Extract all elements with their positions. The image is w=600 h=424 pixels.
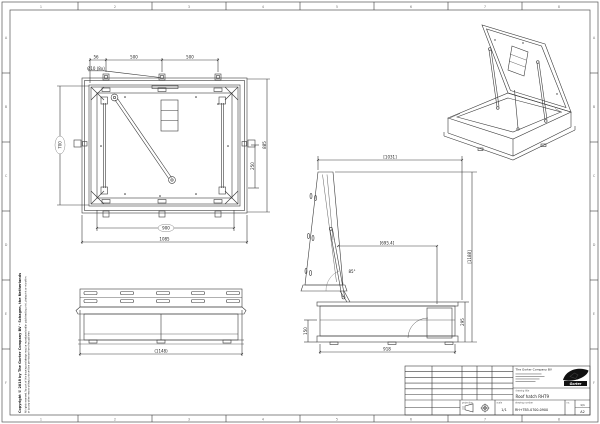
logo-text: Gorter	[570, 382, 582, 386]
grid-row-label: A	[5, 36, 8, 40]
dim-curb-upstand: 150	[303, 327, 308, 335]
grid-row-label: D	[593, 243, 596, 247]
drawing-canvas: 1 2 3 4 5 6 7 8 1 2 3 4 5 6 7 8 A B C D …	[0, 0, 600, 424]
front-elevation-view: (1148)	[76, 289, 246, 356]
scale-value: 1/1	[501, 408, 506, 412]
dim-hole-note: Ø10 (8x)	[87, 66, 105, 71]
grid-col-label: 3	[188, 5, 190, 9]
dim-hole-pitch-1: 500	[130, 55, 138, 60]
company-name: The Gorter Company BV	[515, 368, 553, 372]
copyright-line: or by any other means without prior writ…	[28, 331, 31, 413]
grid-col-label: 8	[558, 418, 560, 422]
grid-col-label: 8	[558, 5, 560, 9]
dim-open-height: [1188]	[467, 250, 472, 264]
side-view-open: [1031] [1188] [695.4] 85° 918 150 295	[301, 155, 477, 354]
label-drawing-title: drawing title	[516, 390, 530, 393]
grid-col-label: 3	[188, 418, 190, 422]
cad-drawing-sheet: 1 2 3 4 5 6 7 8 1 2 3 4 5 6 7 8 A B C D …	[0, 0, 600, 424]
dim-base-length: 918	[383, 347, 391, 352]
grid-col-label: 1	[40, 418, 42, 422]
grid-row-label: F	[593, 381, 595, 385]
revision-table	[405, 366, 513, 415]
grid-col-label: 5	[336, 418, 338, 422]
drawing-title: Roof hatch RHT9	[516, 394, 550, 399]
grid-col-label: 7	[484, 418, 486, 422]
grid-col-label: 4	[262, 5, 264, 9]
grid-col-label: 7	[484, 5, 486, 9]
vent-slots	[84, 292, 240, 303]
dim-lid-width: (1148)	[154, 349, 168, 354]
grid-col-label: 2	[114, 418, 116, 422]
grid-row-label: F	[5, 381, 7, 385]
dim-hole-pitch-2: 500	[186, 55, 194, 60]
title-block: The Gorter Company BV Gorter drawing tit…	[405, 366, 590, 415]
isometric-view	[444, 25, 575, 160]
grid-row-label: D	[5, 243, 8, 247]
dim-clear-length: 900	[162, 225, 170, 230]
dim-curb-length: 1085	[159, 237, 170, 242]
drawing-number: RH+TB5-0700-0900	[515, 408, 548, 412]
copyright-line: Copyright © 2018 by The Gorter Company B…	[18, 273, 22, 413]
grid-col-label: 4	[262, 418, 264, 422]
gas-springs-plan	[101, 94, 226, 194]
paper-format: A2	[580, 410, 584, 414]
grid-col-label: 1	[40, 5, 42, 9]
label-no: no.	[567, 401, 571, 404]
plan-view: 56 500 500 Ø10 (8x) 700 885 250 900 1085	[55, 55, 270, 245]
grid-row-label: B	[593, 105, 596, 109]
grid-col-label: 6	[410, 418, 412, 422]
dim-curb-width: 885	[262, 141, 267, 149]
copyright-notice: Copyright © 2018 by The Gorter Company B…	[18, 273, 31, 413]
grid-row-label: C	[593, 174, 596, 178]
side-dimensions	[304, 156, 477, 354]
grid-row-label: A	[593, 36, 596, 40]
sheet-number: 1/1	[580, 403, 585, 407]
label-drawing-number: drawing number	[515, 401, 533, 404]
grid-row-label: E	[593, 312, 595, 316]
grid-col-label: 2	[114, 5, 116, 9]
grid-row-label: B	[5, 105, 8, 109]
dim-opening-angle: 85°	[348, 269, 355, 274]
dim-clear-width: 700	[57, 141, 62, 149]
grid-row-label: E	[5, 312, 7, 316]
dim-curb-height: 295	[460, 318, 465, 326]
dim-open-depth: [1031]	[383, 155, 397, 160]
dim-edge-offset: 56	[93, 55, 99, 60]
dim-clear-reach: [695.4]	[380, 241, 395, 246]
dim-latch-offset: 250	[250, 162, 255, 170]
grid-col-label: 6	[410, 5, 412, 9]
projection-symbol-icon	[463, 404, 490, 413]
grid-col-label: 5	[336, 5, 338, 9]
gorter-logo-icon: Gorter	[563, 369, 589, 386]
grid-row-label: C	[5, 174, 8, 178]
label-scale: scale	[497, 401, 503, 404]
